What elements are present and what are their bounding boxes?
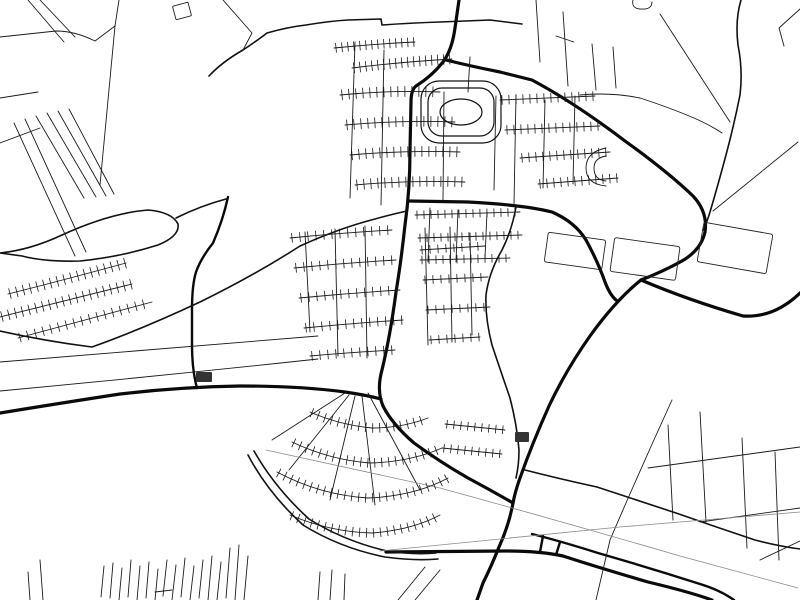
city-map-poster — [0, 0, 800, 600]
medium-roads — [0, 0, 800, 560]
building-block — [196, 372, 212, 382]
landmark-shapes — [172, 2, 772, 442]
house-row — [345, 121, 455, 125]
field-parcel — [610, 238, 680, 281]
stadium-oval — [440, 99, 482, 125]
stadium-block — [428, 88, 494, 136]
house-row — [310, 412, 428, 428]
house-row — [340, 91, 440, 95]
house-row — [299, 290, 400, 298]
thin-roads — [0, 0, 800, 600]
house-row — [520, 152, 610, 158]
field-parcel — [697, 222, 773, 274]
house-row — [8, 263, 126, 294]
street-map-canvas — [0, 0, 800, 600]
house-row — [334, 42, 415, 48]
house-row — [505, 126, 600, 130]
house-row — [500, 96, 595, 100]
building-block — [515, 432, 529, 442]
semi-thick-roads — [192, 197, 734, 600]
house-row — [310, 350, 395, 356]
house-row — [294, 260, 396, 268]
thick-roads — [0, 0, 800, 600]
railway — [266, 450, 800, 588]
small-square-parcel — [172, 2, 191, 20]
house-row — [277, 472, 448, 498]
